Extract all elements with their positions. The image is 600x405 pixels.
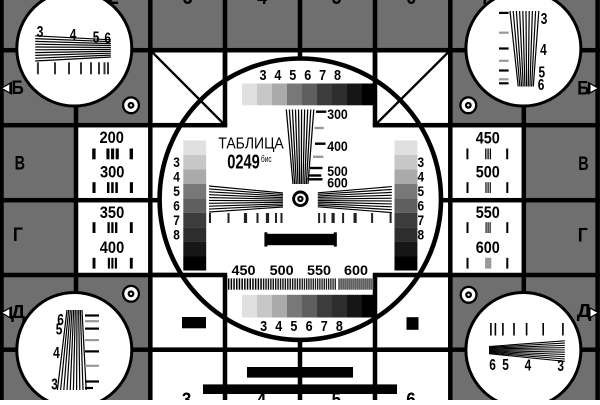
svg-text:5: 5: [173, 184, 180, 199]
svg-text:400: 400: [327, 139, 348, 154]
svg-text:Г: Г: [578, 226, 588, 247]
svg-text:7: 7: [173, 213, 180, 228]
svg-text:7: 7: [418, 213, 425, 228]
svg-text:2: 2: [107, 0, 119, 9]
svg-text:Б: Б: [11, 78, 23, 99]
svg-text:5: 5: [418, 184, 425, 199]
svg-text:8: 8: [418, 227, 425, 242]
svg-text:4: 4: [275, 319, 283, 335]
svg-text:Б: Б: [577, 78, 589, 99]
svg-text:6: 6: [489, 357, 496, 374]
svg-text:7: 7: [481, 0, 491, 9]
svg-text:550: 550: [307, 263, 331, 278]
svg-text:6: 6: [406, 390, 415, 400]
svg-text:400: 400: [100, 238, 124, 257]
svg-text:5: 5: [502, 357, 509, 374]
svg-text:3: 3: [173, 155, 180, 170]
svg-text:6: 6: [418, 198, 425, 213]
svg-text:600: 600: [344, 263, 368, 278]
svg-text:450: 450: [476, 128, 500, 147]
svg-text:550: 550: [476, 203, 500, 222]
svg-text:3: 3: [37, 24, 44, 41]
svg-text:7: 7: [319, 68, 326, 84]
svg-text:5: 5: [332, 0, 342, 9]
svg-text:В: В: [15, 154, 25, 175]
svg-text:6: 6: [173, 198, 180, 213]
svg-text:4: 4: [274, 68, 282, 84]
svg-text:8: 8: [173, 227, 180, 242]
svg-text:бис: бис: [261, 154, 272, 165]
svg-text:Г: Г: [13, 225, 23, 246]
svg-text:4: 4: [540, 42, 547, 59]
svg-text:Д: Д: [11, 301, 25, 322]
svg-text:4: 4: [70, 27, 77, 44]
svg-text:4: 4: [173, 169, 180, 184]
svg-text:600: 600: [476, 238, 500, 257]
svg-text:3: 3: [418, 155, 425, 170]
svg-text:5: 5: [56, 322, 63, 339]
svg-text:450: 450: [232, 263, 256, 278]
svg-text:300: 300: [100, 163, 124, 182]
svg-text:В: В: [578, 154, 588, 175]
svg-text:8: 8: [334, 68, 341, 84]
svg-text:6: 6: [538, 77, 545, 94]
svg-text:6: 6: [104, 31, 111, 48]
svg-text:3: 3: [183, 0, 193, 9]
svg-text:200: 200: [100, 128, 124, 147]
svg-text:600: 600: [327, 176, 348, 191]
svg-text:5: 5: [93, 30, 100, 47]
svg-text:0249: 0249: [227, 151, 260, 174]
svg-text:4: 4: [53, 345, 60, 362]
svg-text:3: 3: [541, 11, 548, 28]
svg-text:6: 6: [406, 0, 416, 9]
svg-text:5: 5: [290, 319, 297, 335]
svg-text:4: 4: [257, 0, 267, 9]
svg-text:3: 3: [51, 377, 58, 394]
svg-text:6: 6: [306, 319, 313, 335]
svg-text:500: 500: [270, 263, 294, 278]
svg-text:350: 350: [100, 203, 124, 222]
svg-text:4: 4: [418, 169, 425, 184]
svg-text:4: 4: [525, 358, 532, 375]
svg-text:3: 3: [182, 390, 191, 400]
svg-text:6: 6: [304, 68, 311, 84]
svg-text:500: 500: [476, 163, 500, 182]
svg-text:300: 300: [327, 107, 348, 122]
svg-text:3: 3: [557, 358, 564, 375]
svg-text:7: 7: [321, 319, 328, 335]
svg-text:3: 3: [260, 68, 267, 84]
svg-text:5: 5: [289, 68, 296, 84]
